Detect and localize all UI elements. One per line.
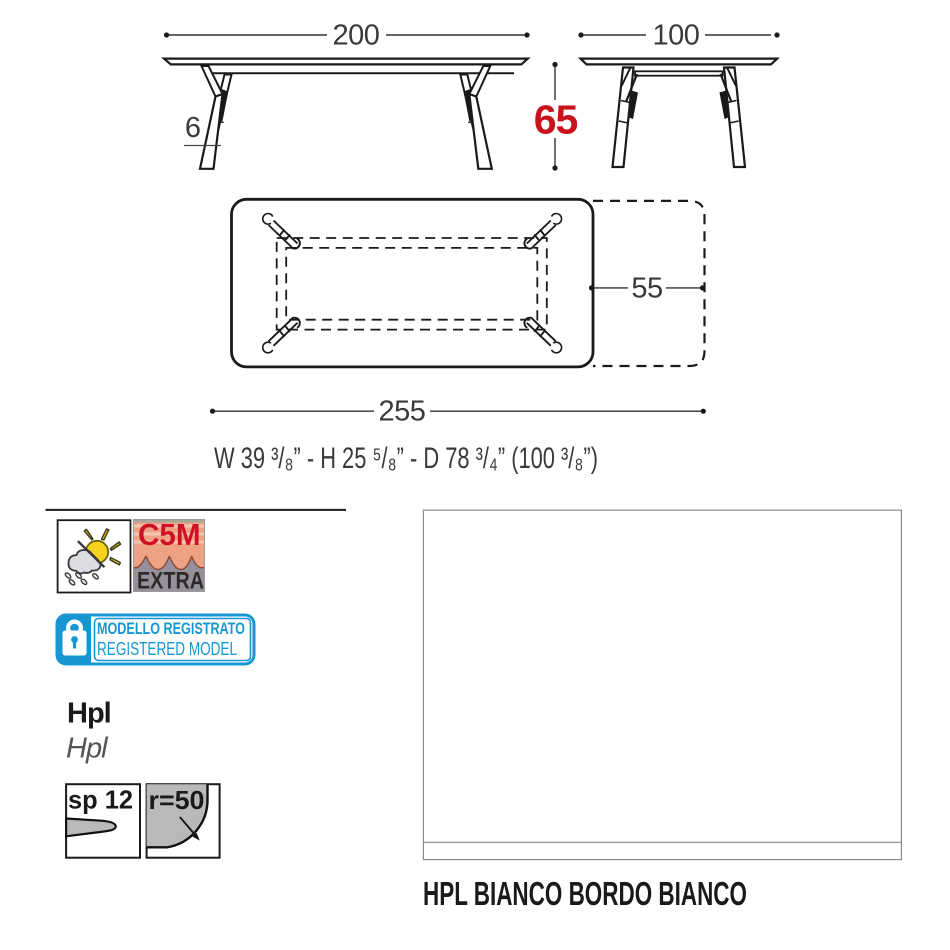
svg-text:C5M: C5M: [138, 517, 201, 552]
svg-text:Hpl: Hpl: [66, 733, 109, 765]
svg-text:sp 12: sp 12: [68, 785, 133, 815]
svg-text:EXTRA: EXTRA: [137, 568, 204, 595]
svg-text:200: 200: [333, 20, 380, 52]
svg-text:HPL BIANCO BORDO BIANCO: HPL BIANCO BORDO BIANCO: [423, 875, 747, 912]
svg-text:6: 6: [185, 112, 201, 144]
svg-text:255: 255: [379, 396, 426, 428]
svg-text:65: 65: [534, 97, 578, 143]
svg-text:MODELLO REGISTRATO: MODELLO REGISTRATO: [97, 620, 245, 638]
svg-text:REGISTERED MODEL: REGISTERED MODEL: [97, 639, 237, 659]
svg-text:W 39 ³/₈” - H 25 ⁵/₈” - D 78: W 39 ³/₈” - H 25 ⁵/₈” - D 78 ³/₄” (100 ³…: [214, 442, 598, 475]
svg-text:r=50: r=50: [149, 785, 205, 815]
svg-text:100: 100: [653, 20, 700, 52]
svg-text:55: 55: [631, 272, 662, 304]
svg-text:Hpl: Hpl: [67, 698, 111, 730]
